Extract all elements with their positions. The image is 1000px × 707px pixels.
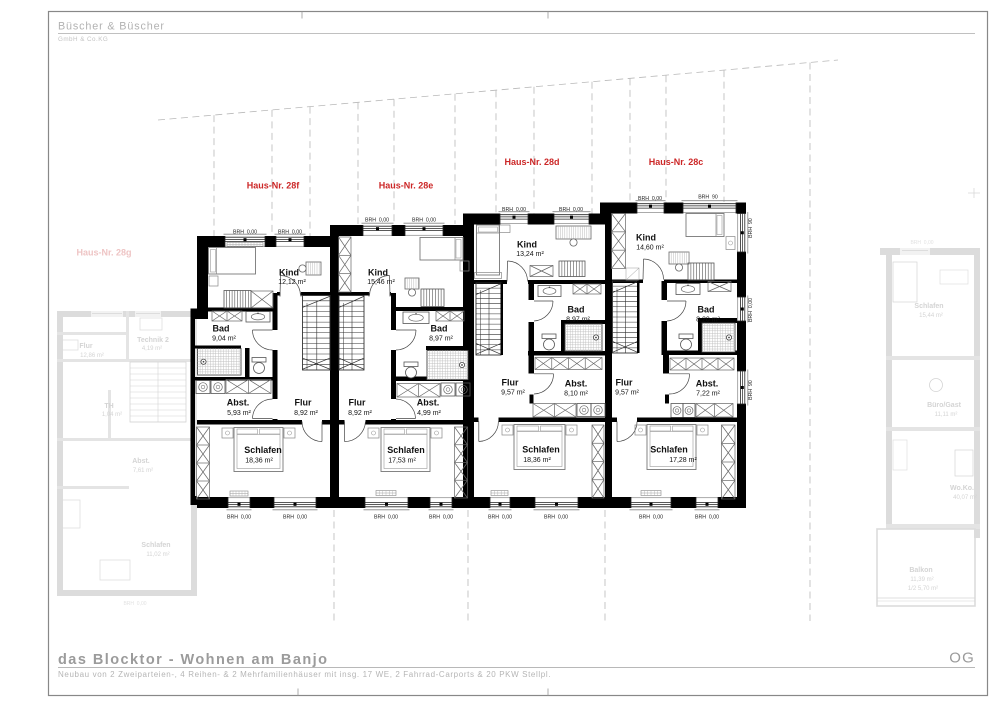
svg-text:Abst.: Abst. xyxy=(565,378,588,388)
svg-text:BRH 0,00: BRH 0,00 xyxy=(502,207,526,213)
svg-text:Büro/Gast: Büro/Gast xyxy=(927,402,962,409)
svg-text:BRH 90: BRH 90 xyxy=(698,195,718,201)
svg-text:OG: OG xyxy=(949,650,975,667)
svg-text:Büscher & Büscher: Büscher & Büscher xyxy=(58,21,165,33)
svg-text:Abst.: Abst. xyxy=(132,458,150,465)
svg-text:Flur: Flur xyxy=(295,398,312,408)
svg-text:Kind: Kind xyxy=(636,232,656,242)
svg-text:15,44 m²: 15,44 m² xyxy=(919,313,943,319)
svg-text:Schlafen: Schlafen xyxy=(387,445,425,455)
svg-text:Bad: Bad xyxy=(567,305,584,315)
svg-text:4,19 m²: 4,19 m² xyxy=(142,346,162,352)
svg-text:12,12 m²: 12,12 m² xyxy=(278,279,306,286)
svg-text:das Blocktor - Wohnen am Banjo: das Blocktor - Wohnen am Banjo xyxy=(58,652,328,668)
svg-text:BRH 0,00: BRH 0,00 xyxy=(639,515,663,521)
svg-text:BRH 0,00: BRH 0,00 xyxy=(910,240,933,246)
svg-text:BRH 0,00: BRH 0,00 xyxy=(748,298,754,322)
svg-text:Bad: Bad xyxy=(697,305,714,315)
svg-text:BRH 0,00: BRH 0,00 xyxy=(488,515,512,521)
svg-text:BRH 0,00: BRH 0,00 xyxy=(233,230,257,236)
svg-text:Schlafen: Schlafen xyxy=(522,444,560,454)
svg-text:Neubau von 2 Zweiparteien-, 4: Neubau von 2 Zweiparteien-, 4 Reihen- & … xyxy=(58,670,551,679)
svg-text:Flur: Flur xyxy=(79,343,92,350)
svg-text:Abst.: Abst. xyxy=(227,398,250,408)
svg-text:Bad: Bad xyxy=(212,324,229,334)
svg-text:Schlafen: Schlafen xyxy=(244,445,282,455)
svg-text:BRH 0,00: BRH 0,00 xyxy=(544,515,568,521)
svg-text:11,02 m²: 11,02 m² xyxy=(146,552,169,558)
svg-text:4,99 m²: 4,99 m² xyxy=(417,410,441,417)
svg-text:13,24 m²: 13,24 m² xyxy=(516,251,544,258)
svg-text:9,57 m²: 9,57 m² xyxy=(615,389,639,396)
svg-text:BRH 0,00: BRH 0,00 xyxy=(559,207,583,213)
svg-text:40,07 m²: 40,07 m² xyxy=(953,495,977,501)
svg-text:BRH 0,00: BRH 0,00 xyxy=(695,515,719,521)
svg-text:BRH 0,00: BRH 0,00 xyxy=(429,515,453,521)
svg-text:BRH 0,00: BRH 0,00 xyxy=(123,601,146,607)
svg-text:Wo.Ko.: Wo.Ko. xyxy=(950,485,974,492)
svg-text:Abst.: Abst. xyxy=(417,398,440,408)
svg-text:Kind: Kind xyxy=(517,239,537,249)
svg-text:8,92 m²: 8,92 m² xyxy=(348,410,372,417)
svg-text:Haus-Nr. 28g: Haus-Nr. 28g xyxy=(76,248,131,258)
svg-text:Abst.: Abst. xyxy=(696,378,719,388)
svg-text:9,57 m²: 9,57 m² xyxy=(501,389,525,396)
svg-text:BRH 0,00: BRH 0,00 xyxy=(638,196,662,202)
svg-text:Schlafen: Schlafen xyxy=(141,542,170,549)
svg-text:BRH 0,00: BRH 0,00 xyxy=(283,515,307,521)
svg-text:8,20 m²: 8,20 m² xyxy=(696,316,720,323)
svg-text:8,10 m²: 8,10 m² xyxy=(564,390,588,397)
svg-text:17,28 m²: 17,28 m² xyxy=(669,457,697,464)
svg-text:TH: TH xyxy=(104,403,113,410)
svg-text:17,53 m²: 17,53 m² xyxy=(388,457,416,464)
svg-text:BRH 90: BRH 90 xyxy=(748,218,754,238)
svg-text:BRH 0,00: BRH 0,00 xyxy=(365,218,389,224)
svg-text:12,86 m²: 12,86 m² xyxy=(80,353,104,359)
svg-text:7,22 m²: 7,22 m² xyxy=(696,390,720,397)
svg-text:5,93 m²: 5,93 m² xyxy=(227,410,251,417)
svg-text:8,97 m²: 8,97 m² xyxy=(566,316,590,323)
svg-text:1,04 m²: 1,04 m² xyxy=(102,412,122,418)
svg-text:BRH 0,00: BRH 0,00 xyxy=(278,230,302,236)
svg-text:Technik 2: Technik 2 xyxy=(137,337,169,344)
svg-text:Haus-Nr. 28e: Haus-Nr. 28e xyxy=(379,181,434,191)
svg-text:7,61 m²: 7,61 m² xyxy=(133,468,153,474)
svg-text:Kind: Kind xyxy=(279,267,299,277)
svg-text:Kind: Kind xyxy=(368,267,388,277)
svg-text:Haus-Nr. 28f: Haus-Nr. 28f xyxy=(247,181,301,191)
svg-text:1/2 5,70 m²: 1/2 5,70 m² xyxy=(908,586,938,592)
svg-text:14,60 m²: 14,60 m² xyxy=(636,245,664,252)
svg-text:15,46 m²: 15,46 m² xyxy=(367,279,395,286)
svg-text:9,04 m²: 9,04 m² xyxy=(212,336,236,343)
svg-text:Haus-Nr. 28d: Haus-Nr. 28d xyxy=(504,157,559,167)
svg-text:Flur: Flur xyxy=(502,377,519,387)
svg-text:8,92 m²: 8,92 m² xyxy=(294,410,318,417)
svg-text:Bad: Bad xyxy=(430,324,447,334)
svg-text:Haus-Nr. 28c: Haus-Nr. 28c xyxy=(649,157,704,167)
svg-text:BRH 0,00: BRH 0,00 xyxy=(412,218,436,224)
svg-text:8,97 m²: 8,97 m² xyxy=(429,336,453,343)
svg-text:Flur: Flur xyxy=(349,398,366,408)
svg-text:Schlafen: Schlafen xyxy=(914,303,943,310)
svg-text:Balkon: Balkon xyxy=(909,567,932,574)
svg-text:18,36 m²: 18,36 m² xyxy=(523,457,551,464)
svg-text:BRH 0,00: BRH 0,00 xyxy=(227,515,251,521)
svg-text:11,39 m²: 11,39 m² xyxy=(910,577,933,583)
svg-text:Flur: Flur xyxy=(616,377,633,387)
svg-text:BRH 0,00: BRH 0,00 xyxy=(374,515,398,521)
svg-text:BRH 90: BRH 90 xyxy=(748,380,754,400)
svg-text:GmbH & Co.KG: GmbH & Co.KG xyxy=(58,36,108,43)
svg-text:Schlafen: Schlafen xyxy=(650,444,688,454)
svg-text:11,11 m²: 11,11 m² xyxy=(935,412,958,418)
svg-text:18,36 m²: 18,36 m² xyxy=(245,457,273,464)
